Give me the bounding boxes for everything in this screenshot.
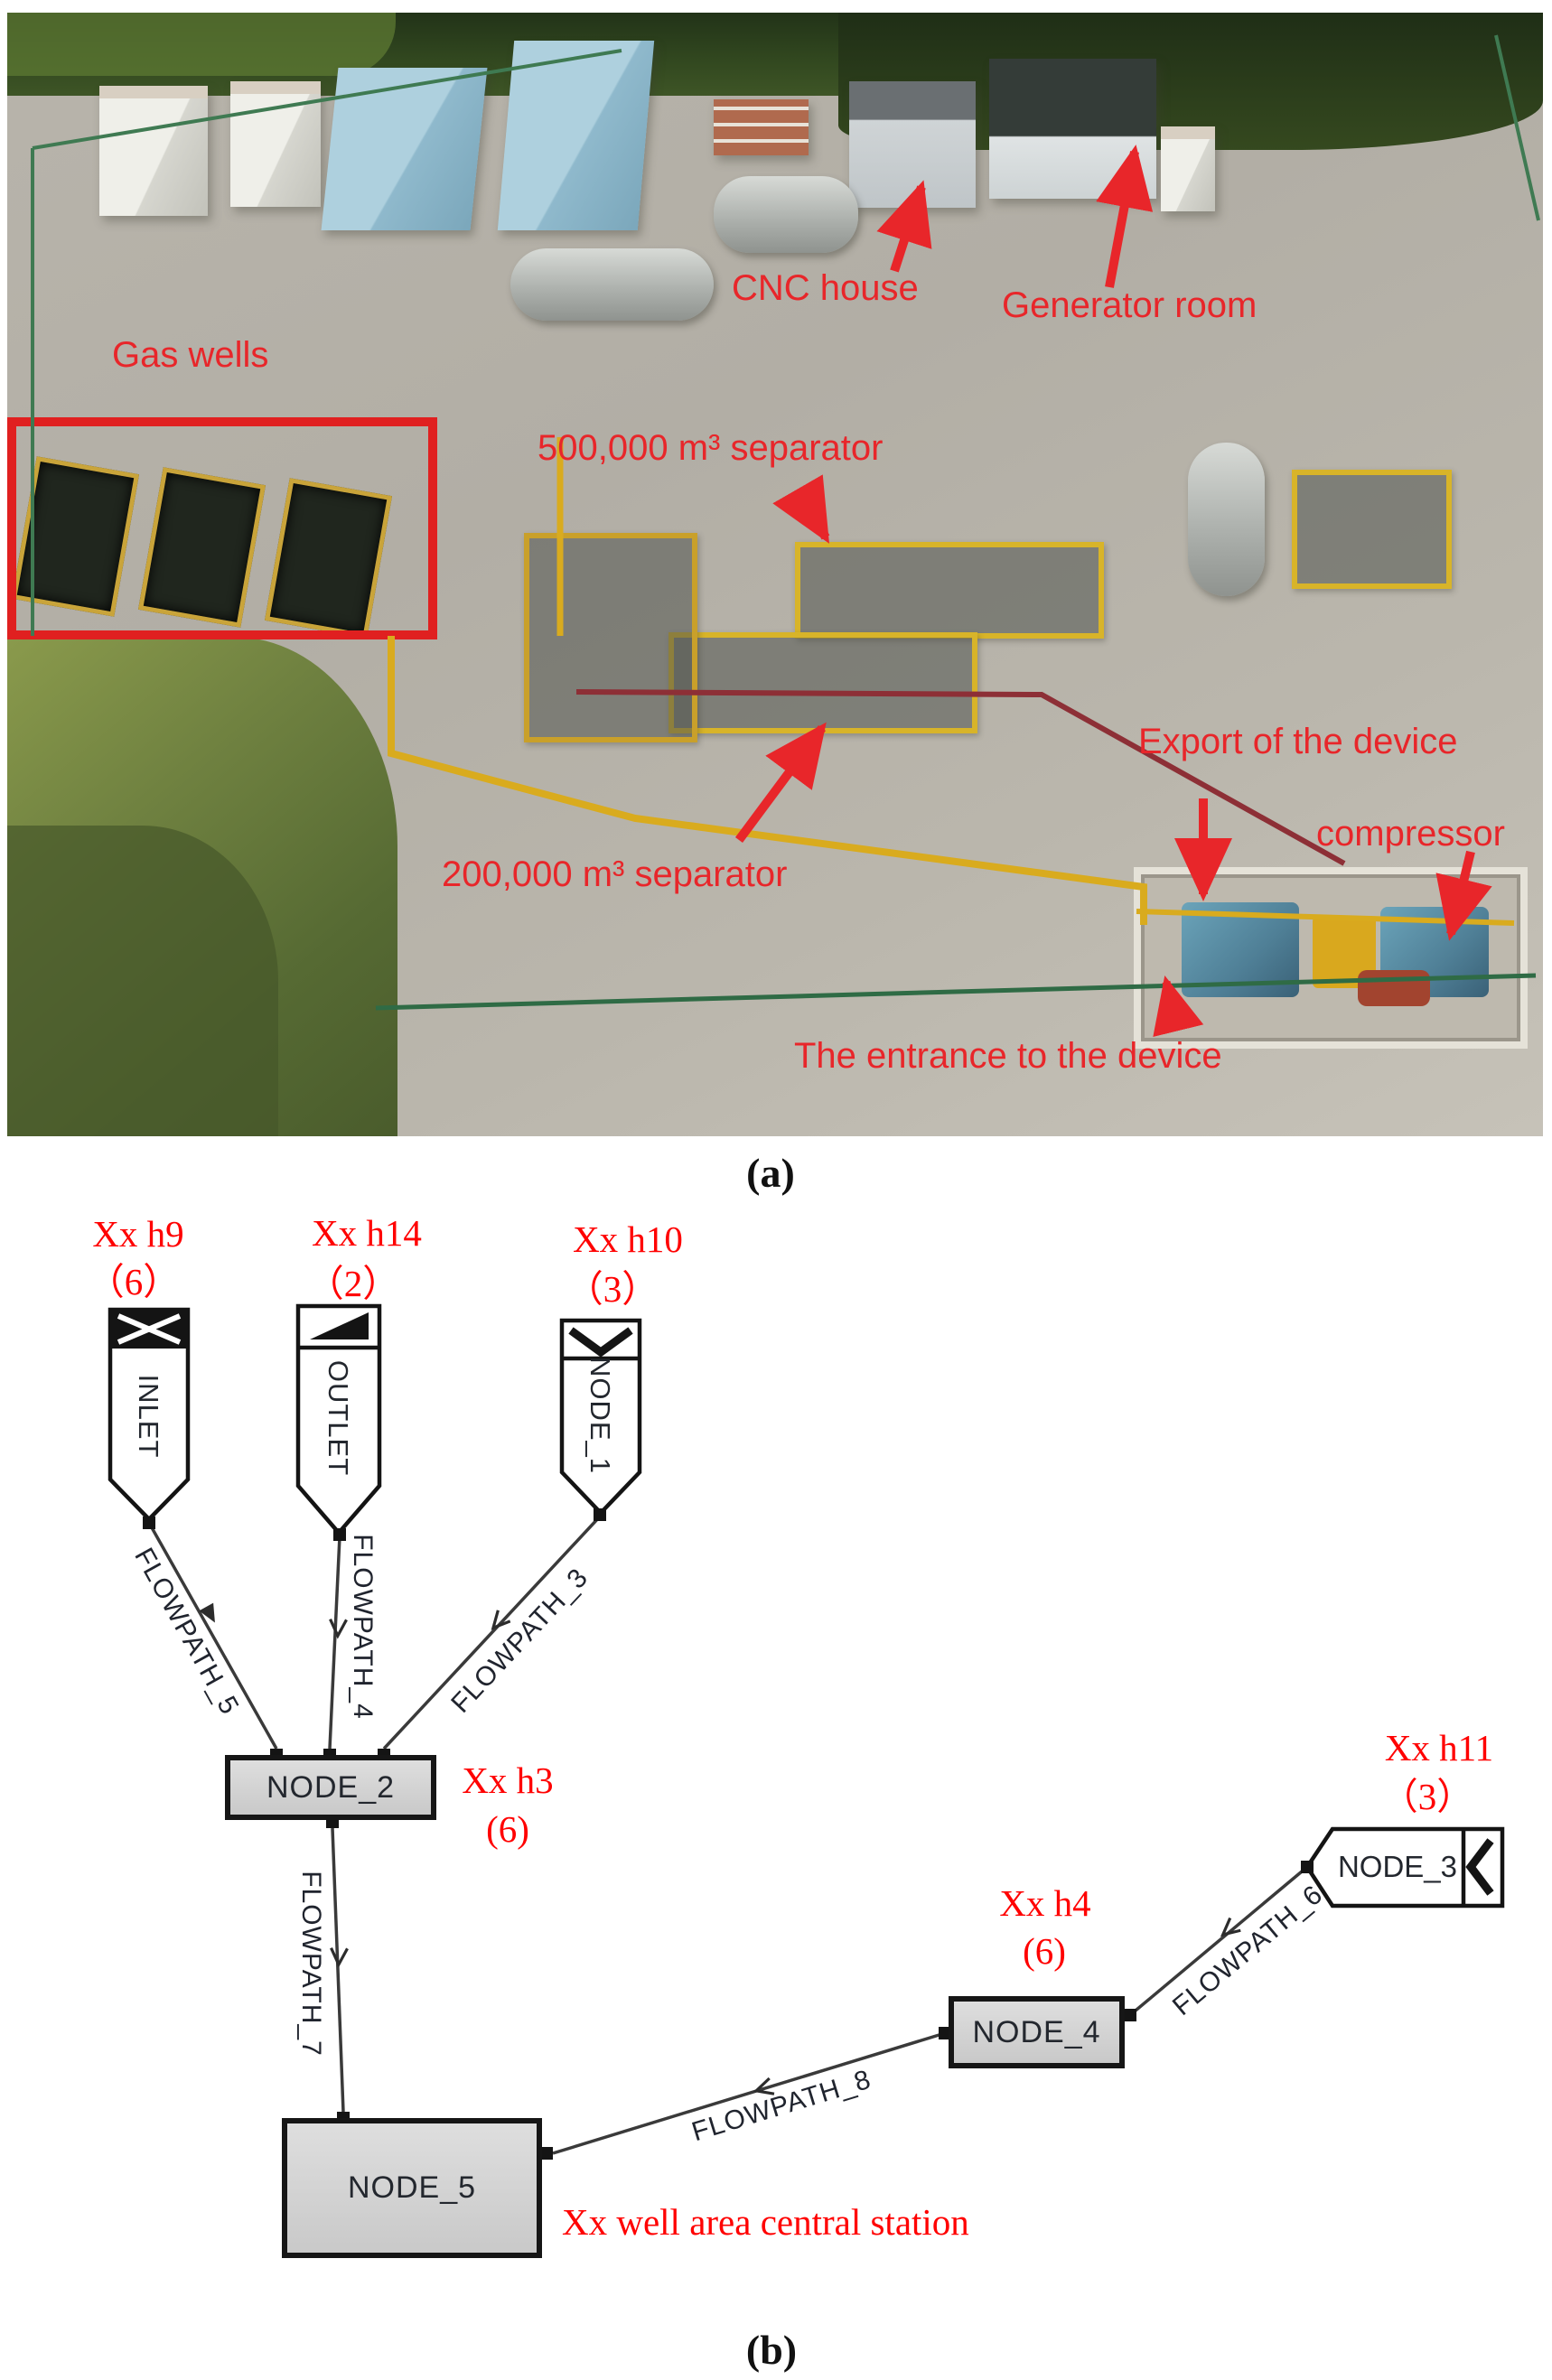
flow-arrow-7 [331, 1948, 348, 1965]
well-h4-name: Xx h4 [946, 1885, 1145, 1922]
fence-front [376, 975, 1536, 1008]
well-h9-name: Xx h9 [39, 1216, 238, 1253]
edge-flowpath-4 [330, 1536, 340, 1749]
edge-flowpath-7 [332, 1828, 343, 2112]
node-3-label: NODE_3 [1334, 1850, 1461, 1881]
node-5-box: NODE_5 [282, 2118, 542, 2258]
node-4-label: NODE_4 [972, 2015, 1100, 2050]
node-2-label: NODE_2 [266, 1770, 395, 1806]
cnc-house-arrow [894, 187, 921, 271]
well-h10-name: Xx h10 [528, 1221, 727, 1258]
compressor-label: compressor [1316, 815, 1505, 853]
outlet-label: OUTLET [323, 1341, 354, 1495]
stub-outlet-tip [333, 1528, 346, 1541]
paper-figure-page: Gas wells CNC house Generator room 500,0… [0, 0, 1552, 2380]
separator-500k-arrow [799, 490, 826, 537]
stub-node5-right [540, 2147, 553, 2160]
well-h10-count: （3） [513, 1271, 712, 1308]
well-h14-name: Xx h14 [267, 1215, 466, 1252]
flow-arrow-4 [330, 1619, 347, 1637]
stub-node3-tip [1301, 1861, 1314, 1873]
edge-flowpath-5 [149, 1523, 276, 1749]
node-4-box: NODE_4 [949, 1996, 1125, 2068]
caption-a: (a) [707, 1149, 834, 1197]
well-h14-count: （2） [254, 1265, 453, 1302]
red-pipe [576, 692, 1344, 863]
inlet-label: INLET [134, 1339, 164, 1493]
stub-node4-right [1124, 2009, 1136, 2021]
edge-flowpath-8 [553, 2033, 945, 2153]
aerial-photo: Gas wells CNC house Generator room 500,0… [7, 13, 1543, 1136]
separator-500k-label: 500,000 m³ separator [538, 429, 883, 467]
node-2-box: NODE_2 [225, 1755, 436, 1820]
stub-node1-tip [594, 1508, 606, 1521]
edge-flowpath-3 [384, 1517, 600, 1749]
flowpath-7-label: FLOWPATH_7 [297, 1869, 326, 2058]
flowpath-4-label: FLOWPATH_4 [349, 1532, 378, 1722]
well-h11-name: Xx h11 [1340, 1730, 1538, 1767]
separator-200k-arrow [739, 728, 822, 840]
caption-b: (b) [708, 2326, 835, 2374]
node-1-label: NODE_1 [585, 1339, 616, 1492]
cnc-house-label: CNC house [732, 269, 919, 307]
well-h3-count: (6) [408, 1811, 607, 1848]
fence-back [33, 51, 622, 148]
node-5-label: NODE_5 [348, 2170, 476, 2206]
flow-arrow-3 [487, 1610, 510, 1633]
well-h4-count: (6) [945, 1933, 1144, 1970]
well-h9-count: （6） [34, 1264, 233, 1301]
gas-wells-label: Gas wells [112, 336, 268, 374]
well-h11-count: （3） [1328, 1778, 1527, 1815]
photo-overlay [7, 13, 1543, 1136]
entrance-of-device-label: The entrance to the device [794, 1037, 1222, 1075]
central-station-label: Xx well area central station [562, 2200, 969, 2244]
export-of-device-label: Export of the device [1138, 723, 1458, 761]
separator-200k-label: 200,000 m³ separator [442, 855, 787, 893]
fence-right [1496, 35, 1538, 220]
entrance-arrow [1166, 982, 1178, 1030]
stub-inlet-tip [143, 1517, 155, 1529]
generator-room-label: Generator room [1002, 286, 1257, 324]
well-h3-name: Xx h3 [408, 1762, 607, 1799]
generator-room-arrow [1109, 152, 1135, 287]
